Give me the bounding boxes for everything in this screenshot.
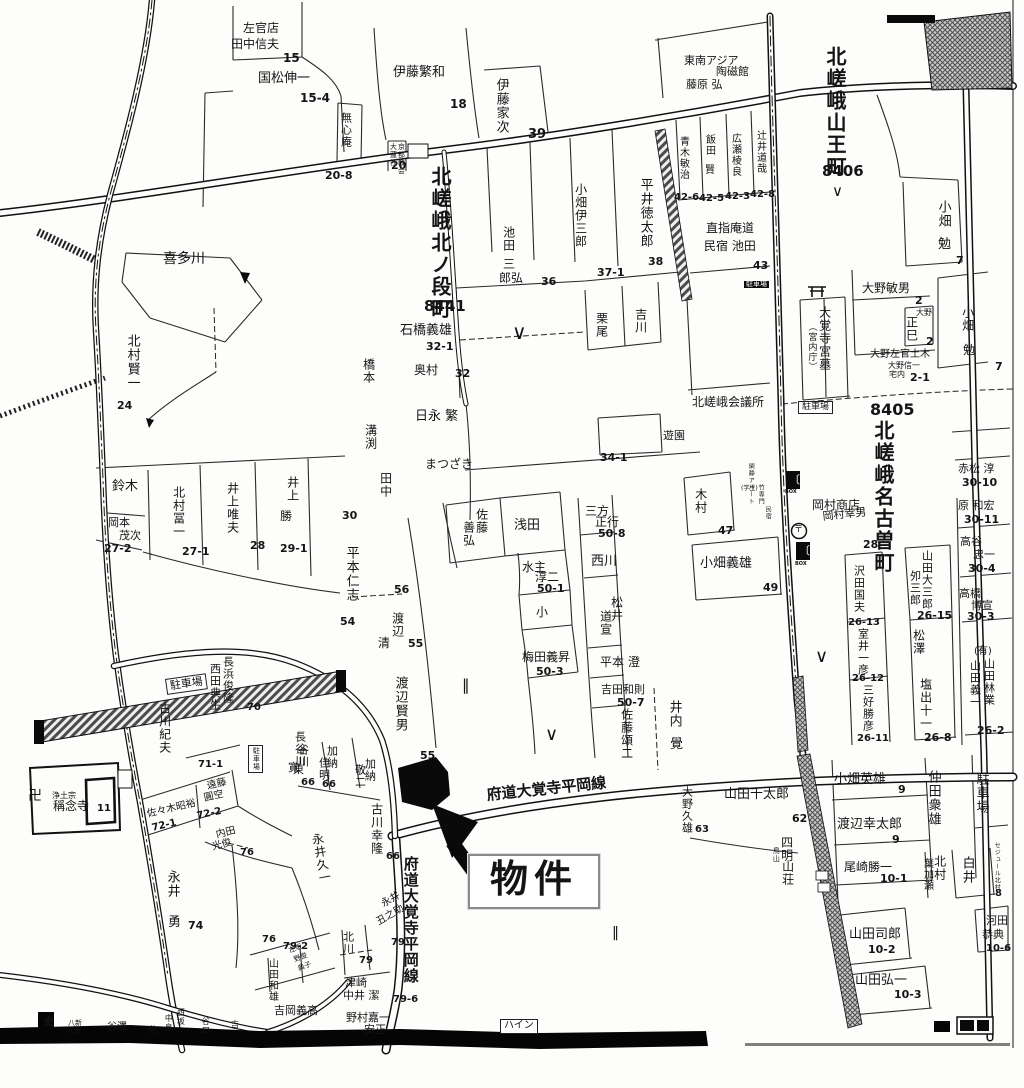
map-label: 11 <box>97 804 111 815</box>
map-label: 38 <box>648 256 663 268</box>
map-label: 72-2 <box>196 807 223 822</box>
map-label: 橋本 <box>362 358 375 384</box>
map-label: 30-10 <box>962 477 997 489</box>
district-label: 北嵯峨山王町 <box>824 46 845 178</box>
map-label: 55 <box>420 750 435 762</box>
map-label: 駐車場 <box>248 745 263 773</box>
map-label: 30-4 <box>968 563 996 575</box>
map-label: 郎弘 <box>499 272 523 285</box>
map-label: 10-1 <box>880 873 908 885</box>
map-label: 北嵯峨会議所 <box>692 396 764 409</box>
map-label: 夘三郎 <box>909 570 921 606</box>
map-label: 佳明 <box>318 757 330 781</box>
map-label: BOX <box>795 562 807 567</box>
map-label: 15-4 <box>300 92 330 105</box>
map-labels-layer: 左官店田中信夫15国松伸一15-4伊藤繁和18伊藤家次39無心庵大蓮社京都教会2… <box>0 0 1024 1088</box>
map-label: 岡本 <box>108 517 130 529</box>
map-label: 古川幸隆 <box>370 803 383 855</box>
map-label: 7 <box>995 361 1003 373</box>
map-label: 永井久一 <box>310 832 331 885</box>
map-label: ∨ <box>832 184 843 200</box>
map-label: 閑静アパート <box>747 463 753 505</box>
map-label: 平本仁志 <box>344 546 358 602</box>
map-label: 広瀬棱良 <box>729 133 740 177</box>
map-label: 安正 <box>364 1024 386 1036</box>
map-label: 42-6 <box>674 193 699 204</box>
map-label: 30-11 <box>964 514 999 526</box>
map-label: 34-1 <box>600 452 628 464</box>
map-label: 山荘 <box>781 860 794 886</box>
map-label: 7 <box>956 255 964 267</box>
map-label: 32-1 <box>426 341 454 353</box>
map-label: 池田 <box>502 226 515 252</box>
map-label: 山田和雄 <box>266 958 277 1002</box>
map-label: ‖ <box>462 678 470 694</box>
map-label: 小畑義雄 <box>700 557 752 571</box>
map-label: 30 <box>342 510 357 522</box>
map-label: 谷口 <box>201 1017 209 1035</box>
map-label: 辻井道哉 <box>754 130 765 174</box>
map-label: 国松伸一 <box>258 72 310 86</box>
map-label: 39 <box>528 128 546 142</box>
map-label: 26-2 <box>977 725 1005 737</box>
map-label: 〒 <box>794 526 803 535</box>
map-label: 藤原 弘 <box>686 79 723 91</box>
map-label: 善弘 <box>462 521 475 547</box>
map-label: 79 <box>359 956 373 967</box>
map-label: 山田司郎 <box>849 928 901 942</box>
map-label: 溝渕 <box>364 424 377 450</box>
map-label: ‖ <box>612 926 619 941</box>
map-label: 10-2 <box>868 944 896 956</box>
map-label: 北村賢一 <box>125 334 139 390</box>
map-label: 無心庵 <box>340 112 352 148</box>
map-label: 26-11 <box>857 734 889 745</box>
map-label: 道宣 <box>599 610 612 636</box>
map-label: 佐々木昭裕 <box>146 799 197 820</box>
map-label: 27-1 <box>182 546 210 558</box>
map-label: 西坂 <box>176 1008 184 1026</box>
map-label: 史 <box>44 1018 54 1029</box>
map-label: 山田大三郎 <box>921 550 933 610</box>
map-label: 原 和宏 <box>958 500 995 512</box>
map-label: 71-1 <box>198 760 223 771</box>
map-label: 佐 <box>149 1027 158 1036</box>
map-label: 79-6 <box>393 995 418 1006</box>
map-label: 20 <box>391 160 406 172</box>
map-label: 岡村幸男 <box>822 506 867 522</box>
map-label: 高谷 <box>960 536 982 548</box>
map-label: 井上 <box>286 476 299 502</box>
map-label: 永井 <box>165 870 179 898</box>
map-label: 大野敏男 <box>862 282 910 295</box>
map-label: 43 <box>753 260 768 272</box>
map-label: 津崎 <box>345 977 367 989</box>
map-label: 直指庵道 <box>706 222 754 235</box>
map-label: 15 <box>283 52 300 65</box>
map-label: 勉 <box>963 344 975 357</box>
map-label: 大野左官土木 <box>870 350 930 361</box>
map-label: 赤松 淳 <box>958 463 995 475</box>
map-label: 50-8 <box>598 528 626 540</box>
map-label: (有) <box>974 647 992 658</box>
map-label: 小畑英雄 <box>834 773 886 787</box>
map-label: 26-12 <box>852 674 884 685</box>
map-label: 梅田義昇 <box>522 651 570 664</box>
map-label: 遊園 <box>663 430 685 442</box>
map-label: 50-3 <box>536 666 564 678</box>
map-label: 奥村 <box>414 364 438 377</box>
map-label: 民宿 池田 <box>704 240 756 253</box>
map-label: 塩出十一 <box>919 678 932 730</box>
map-label: 河田 <box>986 915 1008 927</box>
district-code: 8441 <box>424 299 466 315</box>
map-label: 三 <box>503 258 515 271</box>
map-label: 27-2 <box>104 543 132 555</box>
map-label: 民宿 <box>764 506 770 520</box>
map-label: 26-8 <box>924 732 952 744</box>
map-label: ∨ <box>512 322 527 343</box>
map-label: 小畑 <box>936 200 950 228</box>
map-label: 72-1 <box>151 818 178 834</box>
map-label: 吉岡義高 <box>274 1005 318 1017</box>
map-label: 駐車場 <box>798 401 833 414</box>
map-label: 青木敏治 <box>677 136 688 180</box>
map-label: 仲田衆雄 <box>926 770 940 826</box>
map-label: 白井 <box>960 856 974 884</box>
map-label: 西川 <box>591 555 617 569</box>
map-label: 9 <box>892 834 900 846</box>
map-label: 54 <box>340 616 355 628</box>
map-label: 〔 <box>789 474 800 486</box>
map-label: BOX <box>785 490 797 495</box>
map-label: 卍 <box>28 789 42 804</box>
map-label: セジュール北村 <box>993 842 999 891</box>
map-label: 74 <box>188 920 203 932</box>
map-label: 29-1 <box>280 543 308 555</box>
map-label: ∨ <box>545 726 558 745</box>
map-label: 小畑 <box>961 306 974 332</box>
map-label: 野村嘉一 <box>346 1012 390 1024</box>
map-label: 寛 <box>288 762 299 774</box>
map-label: 長浜俊隆 <box>222 656 234 704</box>
map-label: 北村冨一 <box>172 486 185 538</box>
map-label: 四明 <box>780 836 793 862</box>
map-label: 佐藤 <box>475 508 488 534</box>
road-name-label: 府道大覚寺平岡線 <box>486 775 607 803</box>
map-label: 葉加瀬 <box>921 858 932 891</box>
map-label: 井内 <box>667 700 681 728</box>
map-label: 古川紀夫 <box>158 702 171 754</box>
map-label: 37-1 <box>597 267 625 279</box>
map-label: 井上唯夫 <box>226 482 239 534</box>
map-label: 10-6 <box>986 944 1011 955</box>
map-label: 鈴木 <box>112 480 138 494</box>
map-label: 小畑伊三郎 <box>574 183 587 248</box>
map-label: 20-8 <box>325 170 353 182</box>
road-name-label: 府道大覚寺平岡線 <box>402 856 418 984</box>
map-label: 10-3 <box>894 989 922 1001</box>
map-label: 北村 <box>933 855 946 881</box>
map-label: 55 <box>408 638 423 650</box>
map-label: 忠一 <box>973 549 995 561</box>
map-label: 渡辺 <box>391 612 404 638</box>
map-label: 大野久雄 <box>681 786 693 834</box>
district-code: 8405 <box>870 402 915 419</box>
map-label: (学生) <box>741 486 758 492</box>
map-label: 鳥山 <box>772 847 779 863</box>
map-label: 26-13 <box>848 618 880 629</box>
map-label: 32 <box>455 368 470 380</box>
district-code: 8406 <box>822 164 864 180</box>
map-label: 稱念寺 <box>53 800 89 813</box>
map-label: 8 <box>995 889 1002 900</box>
map-label: 28 <box>250 540 265 552</box>
map-label: 松澤 <box>912 629 925 655</box>
map-label: 66 <box>301 778 315 789</box>
map-label: 70 <box>247 703 261 714</box>
map-label: 9 <box>898 784 906 796</box>
map-label: 47 <box>718 525 733 537</box>
map-label: 八本 <box>67 1029 81 1036</box>
map-label: 79 <box>391 938 405 949</box>
map-label: 西田典生 <box>209 663 221 711</box>
map-label: 49 <box>763 582 778 594</box>
map-label: 大覚寺宮墓 <box>818 306 831 371</box>
map-label: 66 <box>386 852 400 863</box>
map-label: 56 <box>394 584 409 596</box>
map-label: 高橋 <box>959 588 981 600</box>
map-label: 42-5 <box>699 194 724 205</box>
map-label: 50-1 <box>537 583 565 595</box>
map-label: 駐車場 <box>974 772 988 814</box>
map-label: 吉田和則 <box>601 684 645 696</box>
map-label: 宅内 <box>889 371 905 379</box>
map-label: 石橋義雄 <box>400 324 452 338</box>
map-label: 三好勝彦 <box>862 684 874 732</box>
map-label: 2 <box>915 295 923 307</box>
map-label: 渡辺幸太郎 <box>837 818 902 832</box>
map-label: 駐車場 <box>744 281 769 288</box>
map-label: （宮内庁） <box>806 322 815 372</box>
map-label: 18 <box>450 98 467 111</box>
map-label: 伊藤家次 <box>494 78 508 134</box>
map-label: 76 <box>240 848 254 859</box>
map-label: 正巳 <box>905 316 918 342</box>
map-label: 典子 <box>297 961 313 973</box>
map-label: 山田義一 <box>969 660 981 708</box>
map-label: 2-1 <box>910 372 930 384</box>
map-label: 渡辺賢男 <box>393 676 407 732</box>
map-label: 勉 <box>938 238 951 252</box>
map-label: 竹専門 <box>757 484 763 505</box>
map-label: 左官店 <box>243 22 279 35</box>
map-label: 光俊 <box>211 838 233 853</box>
map-label: 日永 繁 <box>415 410 458 424</box>
map-label: 沢田国夫 <box>853 565 865 613</box>
map-label: 50-7 <box>617 697 645 709</box>
map-label: 66 <box>322 780 336 791</box>
map-label: 62 <box>792 813 807 825</box>
map-label: 飯田 <box>703 134 714 156</box>
map-label: 田中信夫 <box>231 38 279 51</box>
map-label: 吉 <box>231 1021 239 1029</box>
map-label: 山田弘一 <box>855 974 907 988</box>
river-label: 喜多川 <box>163 252 205 267</box>
map-label: 山田千太郎 <box>724 788 789 802</box>
map-label: 室井一彦 <box>857 628 869 676</box>
map-label: 中井 潔 <box>343 990 380 1002</box>
map-label: 勝 <box>280 510 292 523</box>
map-label: 中島 <box>164 1014 172 1032</box>
map-label: 茂次 <box>119 530 141 542</box>
map-label: ハイン <box>500 1019 538 1034</box>
map-label: 敬二 <box>354 764 366 788</box>
map-label: 谷澤 <box>107 1023 127 1034</box>
property-label: 物件 <box>468 854 600 909</box>
map-label: 〔 <box>799 545 810 557</box>
map-label: 勇 <box>168 916 181 930</box>
map-label: 吉川 <box>634 308 647 334</box>
map-label: 賢 <box>705 166 715 177</box>
map-label: 恭典 <box>982 929 1004 941</box>
map-label: 伊藤繁和 <box>393 66 445 80</box>
map-label: 平本 澄 <box>600 656 640 669</box>
map-label: 2 <box>926 336 934 348</box>
map-label: まつざき <box>425 458 473 471</box>
map-label: 佐藤頌二 <box>620 708 633 760</box>
map-label: 76 <box>262 935 276 946</box>
map-label: 圓空 <box>203 790 225 804</box>
map-label: 小 <box>536 606 548 619</box>
map-label: 栗尾 <box>595 312 608 338</box>
map-label: 30-3 <box>967 611 995 623</box>
map-label: 42-8 <box>750 190 775 201</box>
map-label: 八新 <box>68 1020 82 1027</box>
map-label: 42-3 <box>725 192 750 203</box>
map-label: 平井徳太郎 <box>638 178 652 248</box>
map-label: 田中 <box>379 472 392 498</box>
map-label: 26-15 <box>917 610 952 622</box>
map-label: 24 <box>117 400 132 412</box>
map-label: 駐車場 <box>165 673 208 694</box>
map-label: 36 <box>541 276 556 288</box>
map-label: 28 <box>863 539 878 551</box>
map-label: 陶磁館 <box>716 66 749 78</box>
map-label: 63 <box>695 825 709 836</box>
map-label: 浅田 <box>514 519 540 533</box>
map-label: ∨ <box>815 648 828 667</box>
map-label: 清 <box>378 637 390 650</box>
map-label: 山田林業 <box>983 658 995 706</box>
cadastral-map: 左官店田中信夫15国松伸一15-4伊藤繁和18伊藤家次39無心庵大蓮社京都教会2… <box>0 0 1024 1088</box>
map-label: 木村 <box>694 488 707 514</box>
map-label: 北川 <box>342 931 354 955</box>
map-label: 覺 <box>670 738 683 752</box>
